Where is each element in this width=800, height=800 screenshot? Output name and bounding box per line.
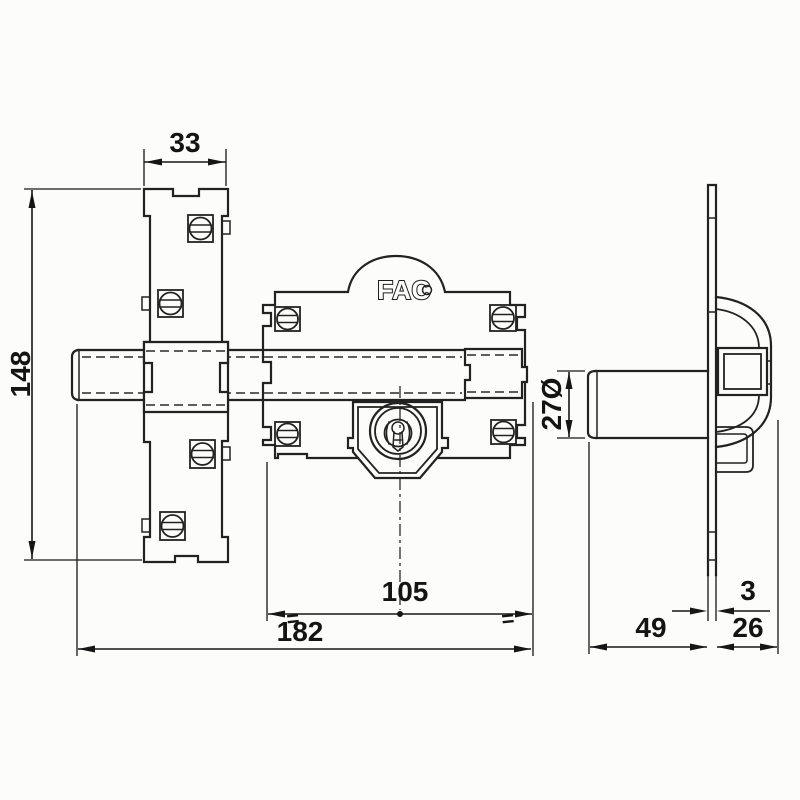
front-view: FAC bbox=[72, 189, 527, 617]
plate-bolt-guide bbox=[144, 342, 228, 412]
dim-rear-depth-label: 26 bbox=[732, 612, 763, 643]
dim-plate-height-label: 148 bbox=[5, 351, 36, 398]
side-bolt-housing bbox=[716, 297, 771, 447]
plate-ear-right-lower bbox=[222, 447, 230, 460]
bolt-cylinder-side bbox=[588, 371, 708, 438]
dimension-plate-height: 148 bbox=[5, 189, 142, 560]
plate-ear-left-upper bbox=[142, 297, 150, 310]
dim-plate-width-label: 33 bbox=[169, 127, 200, 158]
brand-logo: FAC bbox=[377, 275, 431, 305]
dim-body-depth-label: 49 bbox=[635, 612, 666, 643]
plate-ear-left-bottom bbox=[142, 519, 150, 532]
side-view bbox=[588, 185, 771, 575]
equal-mark-right: = bbox=[500, 605, 515, 631]
side-plate bbox=[708, 185, 716, 575]
bolt-guide-square bbox=[718, 348, 767, 395]
dim-plate-thickness-label: 3 bbox=[740, 575, 756, 606]
lock-technical-drawing: FAC bbox=[0, 0, 800, 800]
dim-total-length-label: 182 bbox=[277, 616, 324, 647]
body-bolt-guide-right bbox=[465, 349, 527, 398]
side-lower-housing bbox=[716, 427, 753, 472]
escutcheon bbox=[348, 402, 448, 478]
plate-ear-right-top bbox=[222, 221, 230, 234]
dimension-body-depth: 49 bbox=[589, 442, 707, 654]
dimension-bolt-diameter: 27Ø bbox=[536, 371, 585, 438]
lock-technical-drawing-page: FAC bbox=[0, 0, 800, 800]
dimension-plate-width: 33 bbox=[144, 127, 226, 186]
dim-body-width-label: 105 bbox=[382, 576, 429, 607]
dim-bolt-diameter-label: 27Ø bbox=[536, 378, 567, 431]
